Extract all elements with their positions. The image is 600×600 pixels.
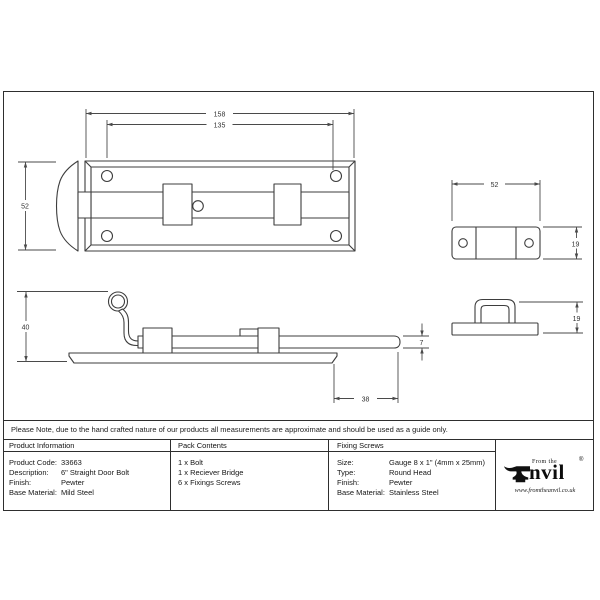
product-information-cell: Product Code: 33663 Description: 6" Stra…	[9, 452, 167, 511]
spec-row-base-material: Base Material: Mild Steel	[9, 488, 167, 498]
spec-sheet-page: 158 135 52	[0, 0, 600, 600]
pack-item: 1 x Bolt	[178, 458, 324, 468]
header-pack-contents: Pack Contents	[178, 440, 324, 451]
spec-row-product-code: Product Code: 33663	[9, 458, 167, 468]
column-divider	[170, 439, 171, 511]
spec-row-finish: Finish: Pewter	[9, 478, 167, 488]
anvil-icon	[504, 463, 530, 485]
pack-item: 6 x Fixings Screws	[178, 478, 324, 488]
spec-row-type: Type: Round Head	[337, 468, 491, 478]
brand-logo-cell: From the nvil ® www.fromtheanvil.co.uk	[496, 440, 594, 511]
fixing-screws-cell: Size: Gauge 8 x 1" (4mm x 25mm) Type: Ro…	[337, 452, 491, 511]
spec-row-screw-base-material: Base Material: Stainless Steel	[337, 488, 491, 498]
header-product-information: Product Information	[9, 440, 167, 451]
spec-row-size: Size: Gauge 8 x 1" (4mm x 25mm)	[337, 458, 491, 468]
spec-row-screw-finish: Finish: Pewter	[337, 478, 491, 488]
disclaimer-note-row: Please Note, due to the hand crafted nat…	[5, 421, 593, 438]
header-fixing-screws: Fixing Screws	[337, 440, 491, 451]
column-divider	[328, 439, 329, 511]
registered-trademark-symbol: ®	[579, 457, 583, 463]
disclaimer-note: Please Note, due to the hand crafted nat…	[5, 425, 448, 434]
pack-contents-cell: 1 x Bolt 1 x Reciever Bridge 6 x Fixings…	[178, 452, 324, 511]
pack-item: 1 x Reciever Bridge	[178, 468, 324, 478]
logo-wordmark: nvil	[529, 460, 565, 485]
spec-row-description: Description: 6" Straight Door Bolt	[9, 468, 167, 478]
logo-website-url: www.fromtheanvil.co.uk	[504, 487, 586, 494]
from-the-anvil-logo: From the nvil ® www.fromtheanvil.co.uk	[504, 456, 586, 496]
